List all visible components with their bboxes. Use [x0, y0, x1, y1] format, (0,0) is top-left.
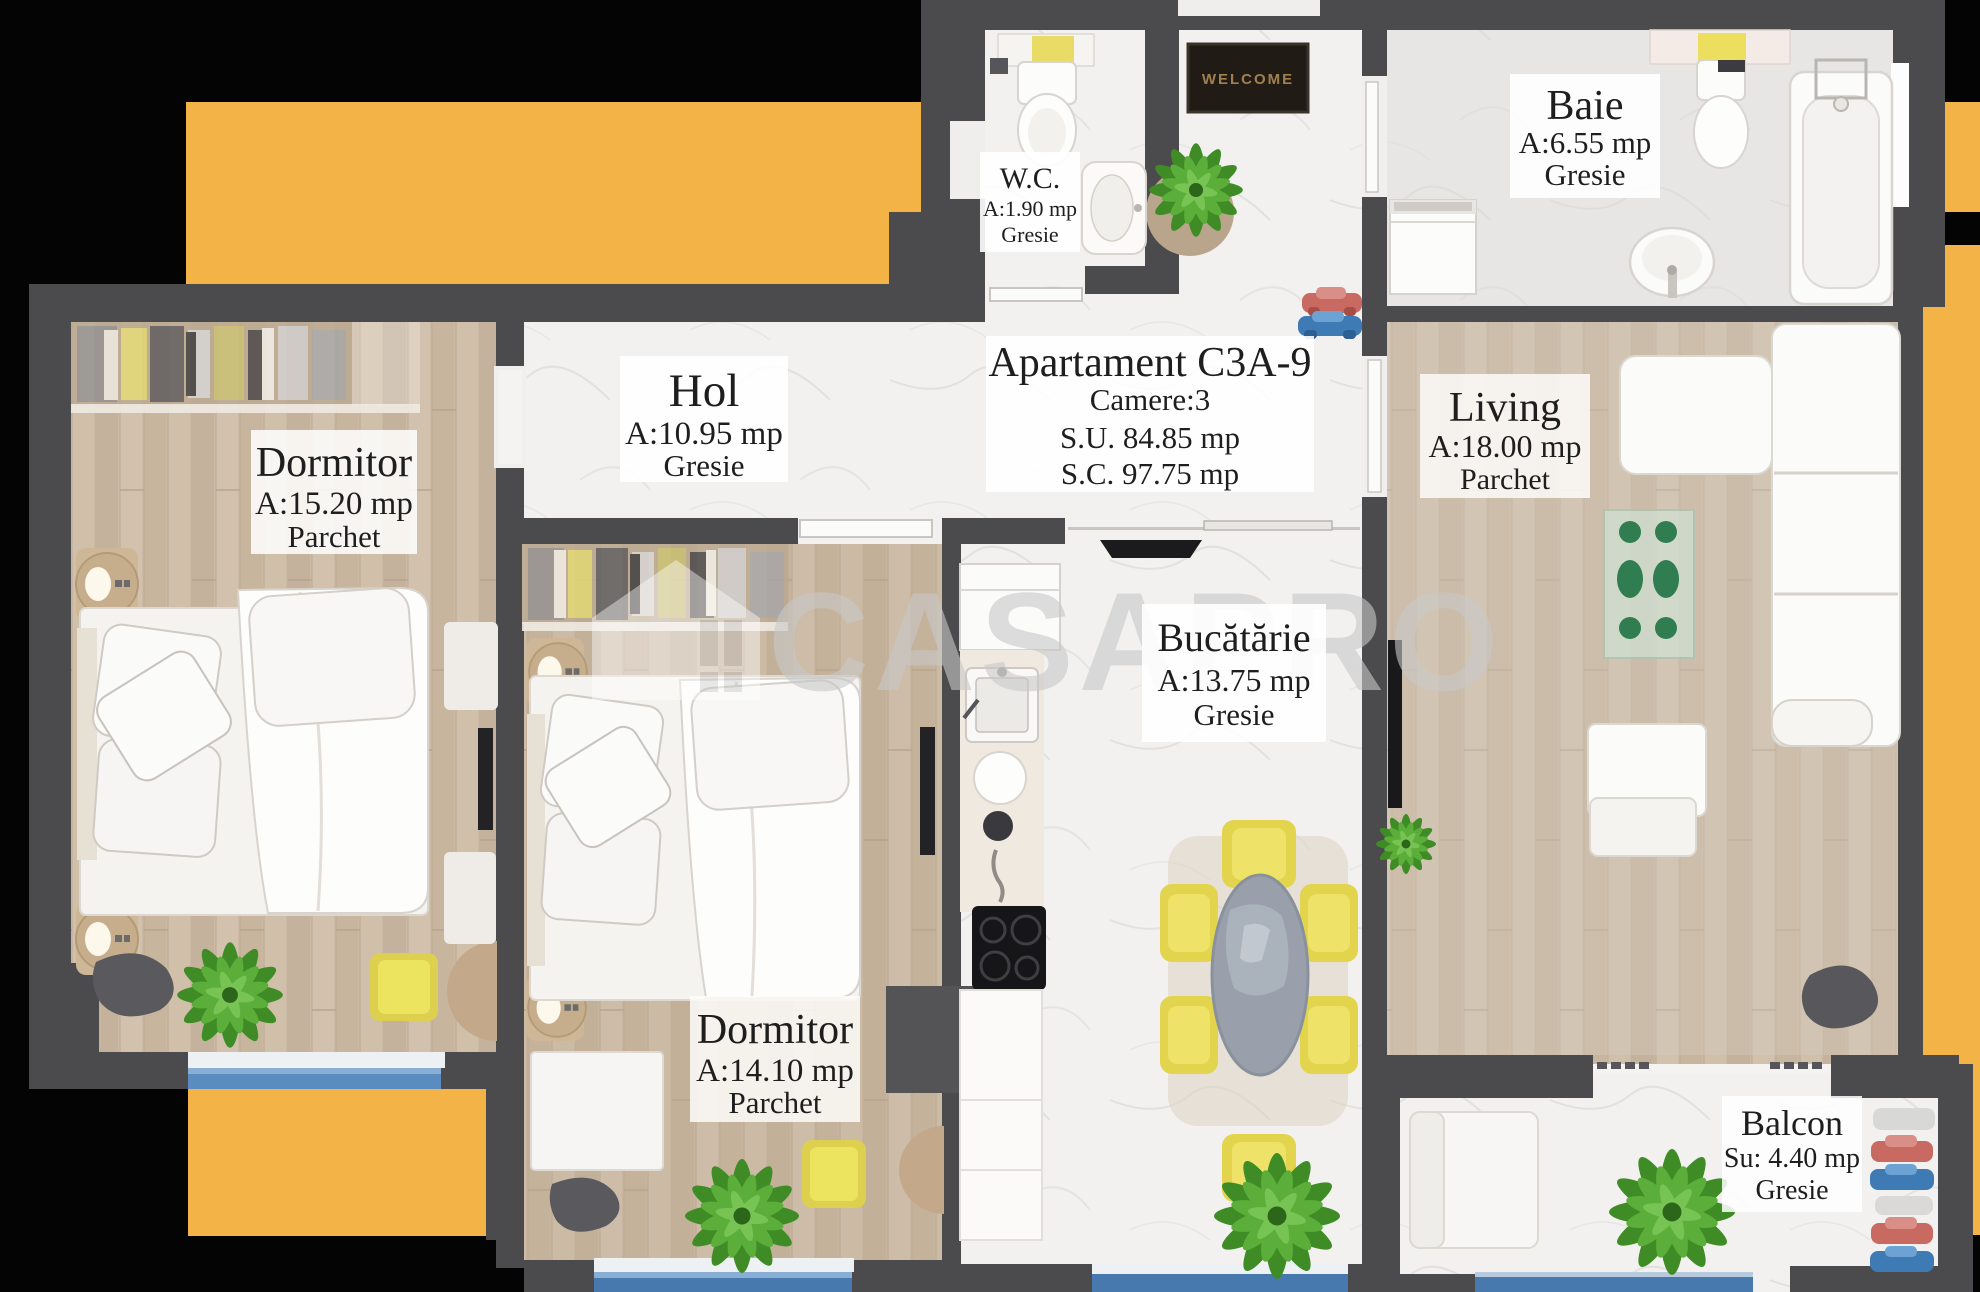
- svg-text:Gresie: Gresie: [1194, 697, 1275, 732]
- svg-text:Parchet: Parchet: [1460, 463, 1551, 496]
- svg-text:Gresie: Gresie: [664, 448, 745, 483]
- svg-text:S.C. 97.75 mp: S.C. 97.75 mp: [1061, 456, 1239, 491]
- svg-text:Hol: Hol: [669, 365, 740, 417]
- svg-text:A:1.90 mp: A:1.90 mp: [983, 196, 1077, 221]
- svg-text:CASAPRO: CASAPRO: [768, 563, 1503, 720]
- svg-text:Gresie: Gresie: [1545, 157, 1626, 192]
- svg-text:Su: 4.40 mp: Su: 4.40 mp: [1724, 1143, 1860, 1174]
- svg-text:Baie: Baie: [1547, 83, 1624, 129]
- svg-text:Dormitor: Dormitor: [697, 1007, 853, 1053]
- svg-text:A:14.10 mp: A:14.10 mp: [696, 1053, 854, 1089]
- svg-text:W.C.: W.C.: [1000, 162, 1061, 195]
- svg-text:Bucătărie: Bucătărie: [1157, 615, 1310, 660]
- svg-text:Apartament C3A-9: Apartament C3A-9: [988, 340, 1311, 386]
- svg-text:Gresie: Gresie: [1755, 1175, 1828, 1206]
- svg-text:WELCOME: WELCOME: [1202, 71, 1294, 88]
- svg-text:S.U. 84.85 mp: S.U. 84.85 mp: [1060, 420, 1240, 455]
- svg-text:Camere:3: Camere:3: [1090, 382, 1211, 417]
- svg-text:A:15.20 mp: A:15.20 mp: [255, 486, 413, 522]
- svg-text:Dormitor: Dormitor: [256, 440, 412, 486]
- svg-text:A:6.55 mp: A:6.55 mp: [1519, 125, 1652, 160]
- svg-text:Parchet: Parchet: [729, 1085, 822, 1120]
- svg-text:A:10.95 mp: A:10.95 mp: [625, 416, 783, 452]
- svg-text:A:18.00 mp: A:18.00 mp: [1429, 428, 1582, 464]
- svg-text:Balcon: Balcon: [1741, 1103, 1843, 1143]
- svg-text:Living: Living: [1449, 385, 1561, 431]
- svg-text:Gresie: Gresie: [1001, 222, 1058, 247]
- svg-text:A:13.75 mp: A:13.75 mp: [1158, 662, 1311, 698]
- svg-text:Parchet: Parchet: [288, 519, 381, 554]
